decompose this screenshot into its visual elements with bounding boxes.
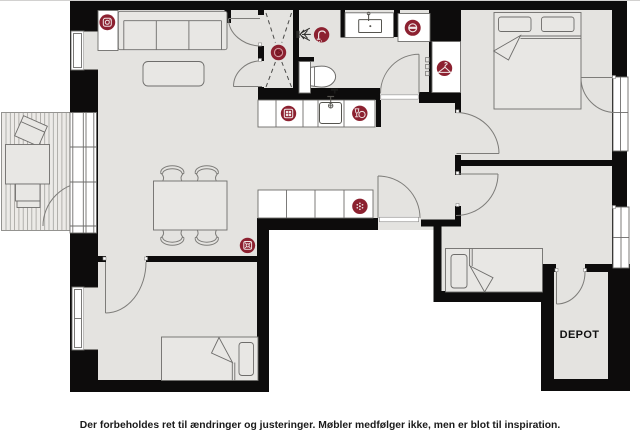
svg-text:Der forbeholdes ret til ændrin: Der forbeholdes ret til ændringer og jus… [80,420,561,431]
svg-text:DEPOT: DEPOT [560,329,600,341]
